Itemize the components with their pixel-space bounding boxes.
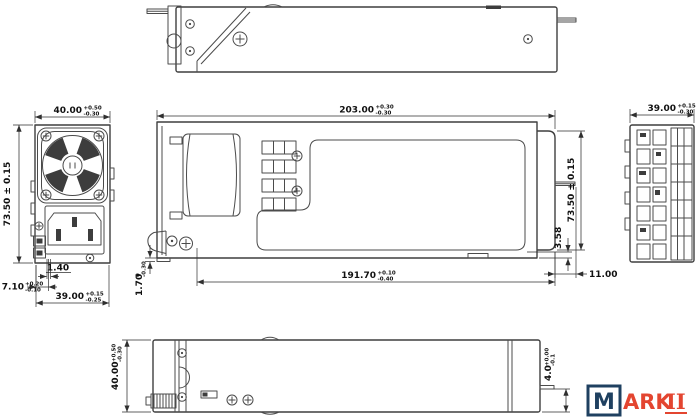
side-view-chassis: [157, 122, 537, 258]
edge-tab: [486, 6, 501, 10]
side-view: [148, 122, 575, 262]
fan-side-profile: [183, 134, 240, 216]
latch-handle: [148, 231, 193, 256]
vent-grille: [637, 130, 666, 259]
dim-side-rear-inset: 3.58: [527, 227, 572, 271]
logo-text-underlined: II: [666, 389, 686, 414]
dim-front-led-gap: 1.40: [38, 259, 71, 279]
top-view: [147, 5, 576, 72]
brand-logo: M ARK II: [588, 386, 687, 415]
dim-value: 40.00: [111, 362, 121, 390]
dim-value: 73.50 ± 0.15: [3, 162, 13, 226]
dim-tol-lower: -0.30: [84, 112, 100, 118]
technical-drawing: 40.00 +0.50 -0.30 73.50 ± 0.15 1.40 7.10…: [0, 0, 700, 417]
connector-pin: [540, 386, 554, 390]
louver-vents: [262, 141, 296, 211]
dim-bottom-depth: 40.00 +0.50 -0.30: [111, 340, 151, 412]
logo-text: ARK: [623, 390, 672, 414]
dim-value: 39.00: [56, 292, 84, 302]
iec-c14-inlet: [45, 206, 104, 254]
bottom-view-chassis: [153, 340, 540, 412]
dim-front-inlet-offset: 7.10 +0.20 -0.10: [2, 259, 57, 294]
dim-value: 4.0: [544, 365, 554, 381]
dim-tol-lower: -0.10: [25, 288, 41, 294]
cooling-fan: [38, 128, 108, 203]
output-connector: [671, 128, 692, 260]
dim-value: 203.00: [339, 106, 374, 116]
dim-value: 73.50 ± 0.15: [567, 158, 577, 222]
dim-bottom-pin-offset: 4.0 +0.00 -0.1: [542, 348, 570, 412]
dim-side-chassis-length: 191.70 +0.10 -0.40: [197, 248, 555, 286]
rear-extension: [537, 131, 555, 250]
front-view: [31, 125, 114, 263]
dim-value: 3.58: [554, 227, 564, 249]
dim-rear-width: 39.00 +0.15 -0.30: [630, 104, 696, 124]
dim-value: 39.00: [648, 104, 676, 114]
latch-pivot: [179, 367, 190, 388]
dim-value: 11.00: [589, 270, 617, 280]
drawing-sheet: 40.00 +0.50 -0.30 73.50 ± 0.15 1.40 7.10…: [0, 0, 700, 417]
rear-view: [625, 125, 694, 262]
dim-front-height: 73.50 ± 0.15: [3, 125, 33, 263]
dim-tol-lower: -0.30: [678, 110, 694, 116]
dim-tol-lower: -0.30: [142, 261, 148, 277]
dim-side-overall-length: 203.00 +0.30 -0.30: [157, 105, 555, 130]
dim-tol-lower: -0.25: [86, 298, 102, 304]
dim-value: 7.10: [2, 283, 24, 293]
bottom-view: [146, 337, 554, 414]
dim-tol-lower: -0.1: [551, 354, 557, 366]
dim-tol-lower: -0.30: [376, 111, 392, 117]
dim-value: 191.70: [341, 271, 376, 281]
logo-boxed-letter: M: [593, 390, 615, 415]
dim-value: 40.00: [54, 106, 82, 116]
dim-tol-lower: -0.30: [118, 346, 124, 362]
latch-pivot: [167, 34, 181, 48]
dim-value: 1.40: [47, 264, 69, 274]
dim-front-width: 40.00 +0.50 -0.30: [35, 106, 110, 124]
dim-tol-lower: -0.40: [378, 277, 394, 283]
edge-tab: [261, 337, 279, 414]
serrated-knob: [146, 394, 176, 408]
